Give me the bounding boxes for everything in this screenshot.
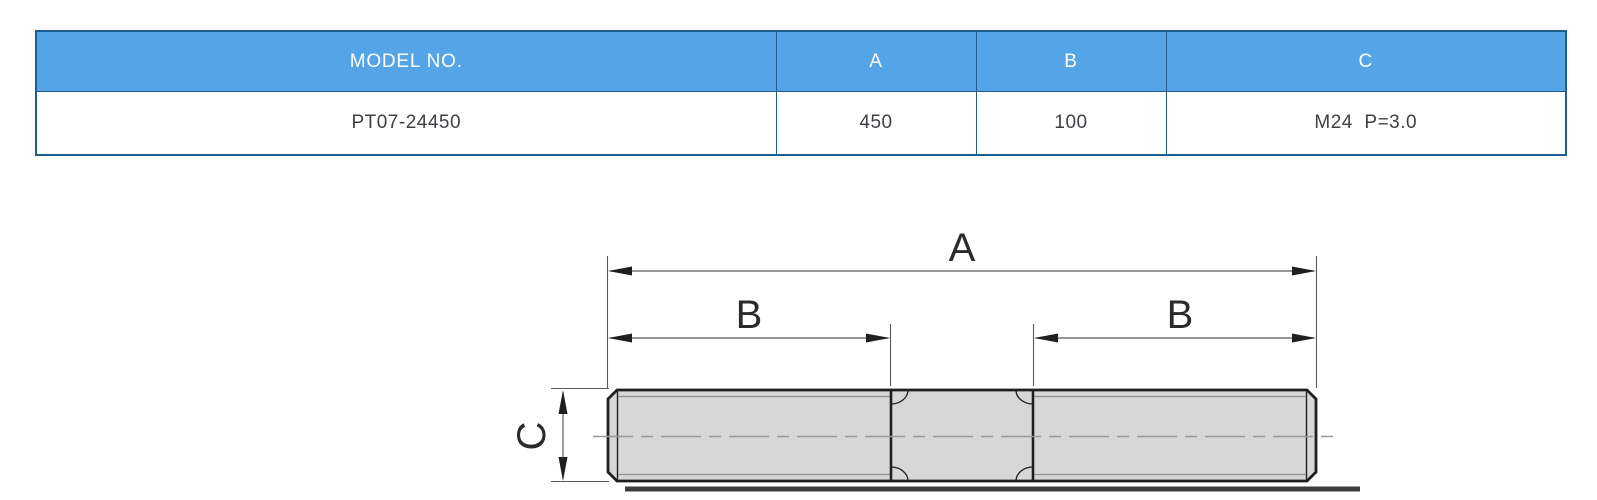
dim-a-arrow-left-icon	[608, 267, 632, 276]
dimension-b-right: B	[1034, 293, 1316, 343]
dimension-c: C	[510, 390, 568, 481]
page: MODEL NO. A B C PT07-24450 450 100 M24 P…	[0, 0, 1597, 500]
dim-c-arrow-up-icon	[559, 390, 568, 414]
stud-body	[593, 390, 1333, 481]
stud-technical-drawing: A B B C	[0, 0, 1597, 500]
dimension-a: A	[608, 226, 1316, 276]
dim-label-c: C	[510, 422, 554, 451]
dim-b-right-arrow-left-icon	[1034, 334, 1058, 343]
dim-c-arrow-down-icon	[559, 457, 568, 481]
dim-b-left-arrow-right-icon	[866, 334, 890, 343]
dim-b-right-arrow-right-icon	[1292, 334, 1316, 343]
dim-a-arrow-right-icon	[1292, 267, 1316, 276]
dim-label-b-left: B	[736, 293, 763, 337]
dim-label-b-right: B	[1167, 293, 1194, 337]
stud-outline	[608, 390, 1316, 481]
dimension-b-left: B	[608, 293, 890, 343]
dim-label-a: A	[949, 226, 976, 270]
dim-b-left-arrow-left-icon	[608, 334, 632, 343]
